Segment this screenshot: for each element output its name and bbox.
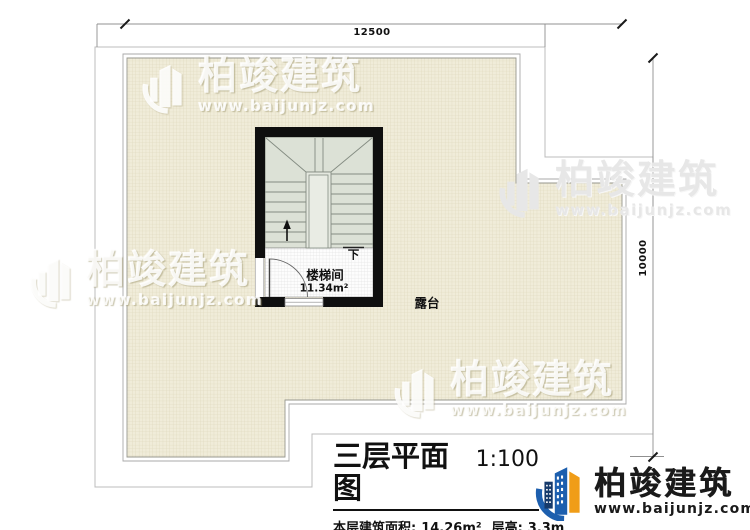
title-block: 三层平面图 1:100 本层建筑面积: 14.26m² 层高: 3.3m (333, 441, 545, 530)
drawing-scale: 1:100 (476, 447, 539, 472)
brand-logo-icon (533, 461, 589, 521)
floor-height-value: 3.3m (528, 521, 565, 530)
dimension-top-value: 12500 (353, 27, 390, 38)
dimension-top: 12500 (97, 20, 627, 48)
stair-direction-label: 下 (348, 248, 360, 262)
window (285, 299, 323, 307)
brand-name: 柏竣建筑 (594, 467, 750, 499)
floor-plan-page: 12500 10000 (0, 0, 750, 530)
drawing-title: 三层平面图 (333, 441, 463, 505)
brand-logo: 柏竣建筑 www.baijunjz.com (533, 461, 750, 521)
brand-website: www.baijunjz.com (594, 502, 750, 516)
stair-well (306, 172, 331, 248)
terrace-label: 露台 (414, 296, 439, 311)
floor-area-value: 14.26m² (421, 521, 481, 530)
stair-room-label: 楼梯间 (306, 268, 344, 283)
stair-room-area: 11.34m² (300, 283, 349, 295)
dimension-right-value: 10000 (638, 239, 649, 276)
floor-area-label: 本层建筑面积: (333, 517, 416, 530)
floor-height-label: 层高: (492, 517, 523, 530)
